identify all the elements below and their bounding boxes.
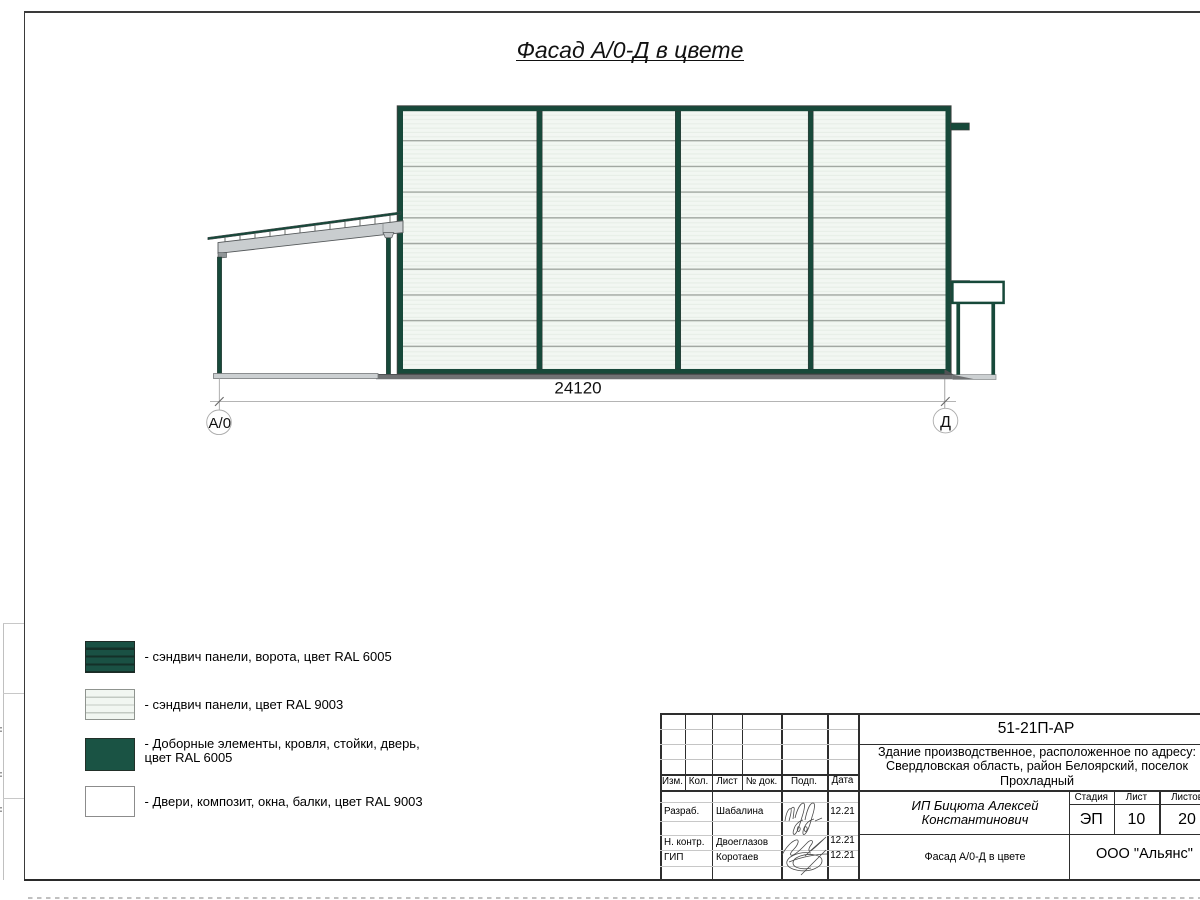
svg-text:24120: 24120: [554, 379, 601, 398]
svg-text:А/0: А/0: [209, 415, 232, 432]
svg-text:Д: Д: [940, 414, 951, 431]
